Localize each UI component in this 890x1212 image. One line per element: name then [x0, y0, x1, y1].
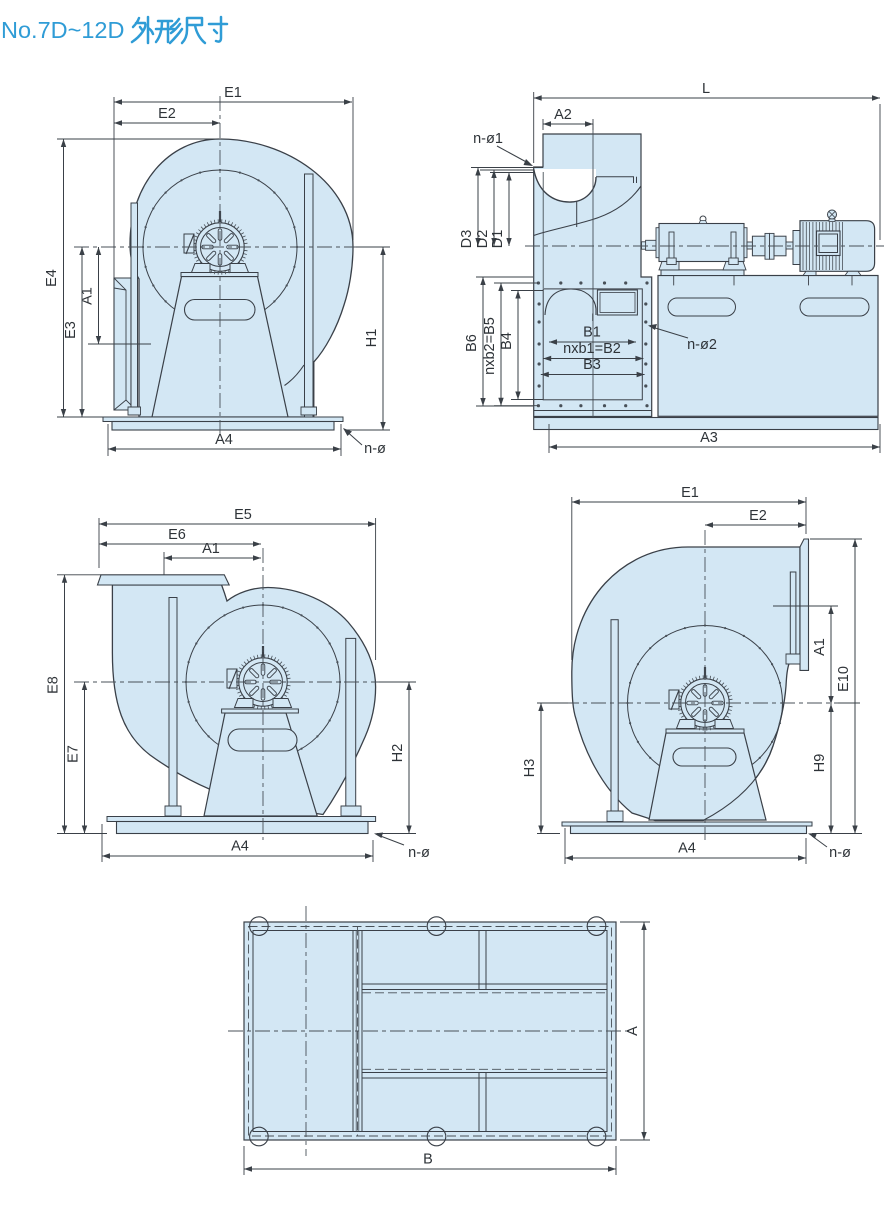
svg-text:E1: E1 [681, 485, 699, 501]
svg-text:A1: A1 [812, 638, 828, 656]
svg-text:E8: E8 [46, 676, 62, 694]
svg-text:E7: E7 [66, 745, 82, 763]
svg-text:B3: B3 [583, 357, 601, 373]
svg-text:A4: A4 [678, 841, 696, 857]
svg-text:H3: H3 [522, 759, 538, 778]
svg-text:n-ø2: n-ø2 [687, 337, 717, 353]
svg-text:A4: A4 [231, 839, 249, 855]
svg-text:E1: E1 [224, 85, 242, 101]
svg-text:H1: H1 [364, 329, 380, 348]
svg-text:D2: D2 [475, 230, 491, 249]
svg-text:nxb2=B5: nxb2=B5 [482, 317, 498, 375]
svg-text:n-ø: n-ø [408, 845, 430, 861]
svg-text:nxb1=B2: nxb1=B2 [563, 341, 621, 357]
svg-text:E2: E2 [749, 508, 767, 524]
svg-text:n-ø: n-ø [829, 845, 851, 861]
svg-text:A3: A3 [700, 430, 718, 446]
svg-text:B4: B4 [499, 332, 515, 350]
svg-text:A4: A4 [215, 432, 233, 448]
svg-text:n-ø1: n-ø1 [473, 131, 503, 147]
svg-text:n-ø: n-ø [364, 441, 386, 457]
svg-text:D1: D1 [490, 230, 506, 249]
svg-text:B6: B6 [464, 334, 480, 352]
svg-text:B1: B1 [583, 325, 601, 341]
svg-text:A: A [625, 1026, 641, 1036]
svg-text:E2: E2 [158, 106, 176, 122]
svg-text:B: B [423, 1152, 433, 1168]
svg-text:L: L [702, 81, 710, 97]
svg-text:E3: E3 [63, 321, 79, 339]
svg-text:A2: A2 [554, 107, 572, 123]
svg-text:E4: E4 [44, 269, 60, 287]
svg-text:A1: A1 [202, 541, 220, 557]
svg-text:No.7D~12D: No.7D~12D [1, 17, 124, 43]
svg-text:H2: H2 [390, 744, 406, 763]
svg-text:E10: E10 [836, 666, 852, 692]
svg-text:H9: H9 [812, 754, 828, 773]
svg-text:E6: E6 [168, 527, 186, 543]
svg-text:E5: E5 [234, 507, 252, 523]
svg-text:D3: D3 [459, 230, 475, 249]
